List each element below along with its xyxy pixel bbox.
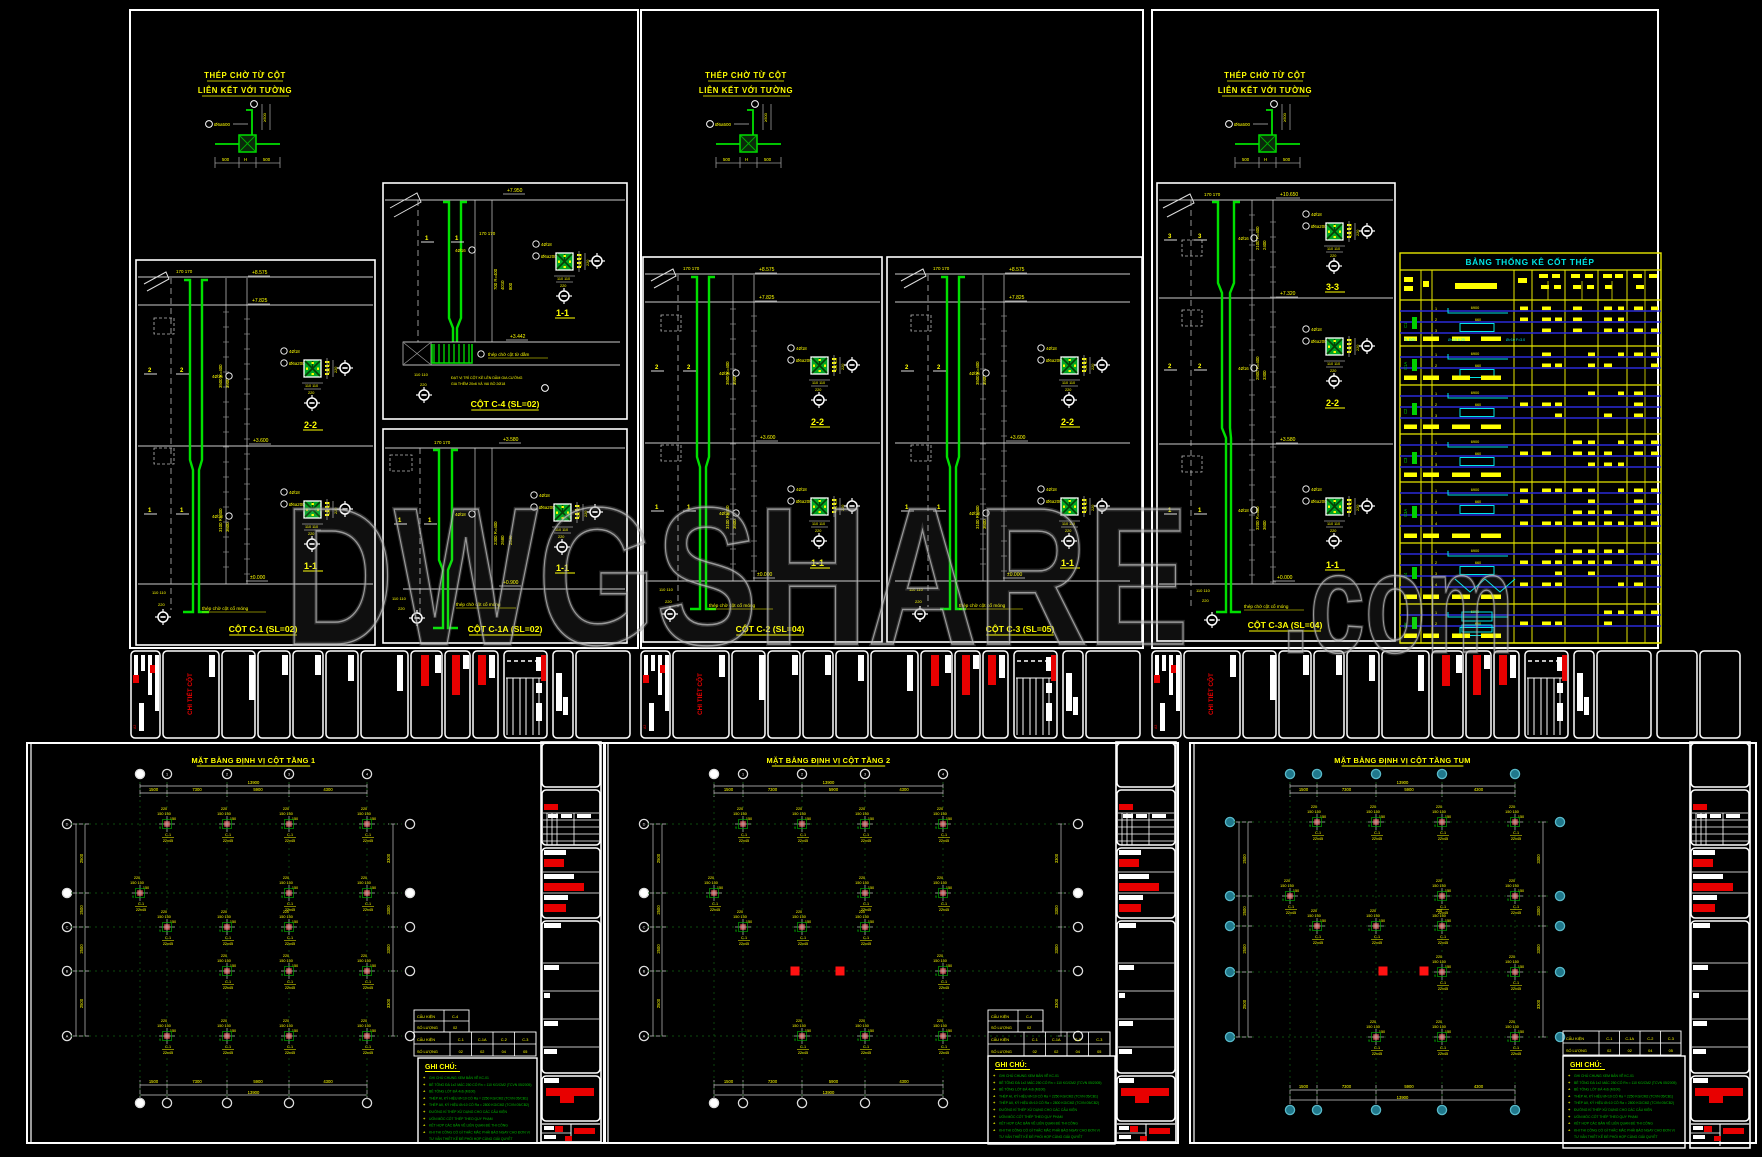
svg-text:22x45: 22x45 bbox=[285, 942, 295, 946]
svg-text:C-1: C-1 bbox=[741, 936, 747, 940]
svg-text:150: 150 bbox=[868, 817, 874, 821]
svg-text:660: 660 bbox=[1475, 403, 1481, 407]
svg-text:9: 9 bbox=[1368, 1039, 1370, 1043]
svg-text:150 150: 150 150 bbox=[1307, 914, 1321, 918]
svg-text:150 150: 150 150 bbox=[1505, 1025, 1519, 1029]
svg-text:THÉP AI, KÝ HIỆU Ø<10 CÓ Ra =: THÉP AI, KÝ HIỆU Ø<10 CÓ Ra = 2250 KG/CM… bbox=[999, 1093, 1098, 1098]
svg-text:9: 9 bbox=[1434, 928, 1436, 932]
svg-text:6900: 6900 bbox=[1471, 440, 1479, 444]
svg-text:150 150: 150 150 bbox=[792, 1024, 806, 1028]
svg-text:150: 150 bbox=[230, 920, 236, 924]
svg-text:22x45: 22x45 bbox=[1313, 941, 1323, 945]
svg-text:22x45: 22x45 bbox=[939, 839, 949, 843]
svg-text:22x45: 22x45 bbox=[710, 908, 720, 912]
svg-text:22x45: 22x45 bbox=[1313, 837, 1323, 841]
svg-text:2: 2 bbox=[1435, 318, 1437, 322]
svg-text:1500: 1500 bbox=[149, 787, 159, 792]
svg-text:TƯ VẤN THIẾT KẾ ĐỂ PHỐI HỢP CÙ: TƯ VẤN THIẾT KẾ ĐỂ PHỐI HỢP CÙNG GIẢI QU… bbox=[429, 1136, 513, 1141]
svg-text:9: 9 bbox=[857, 929, 859, 933]
svg-text:1-1: 1-1 bbox=[556, 308, 569, 318]
svg-text:22x45: 22x45 bbox=[223, 942, 233, 946]
svg-text:9: 9 bbox=[935, 973, 937, 977]
svg-text:9: 9 bbox=[281, 973, 283, 977]
svg-text:SỐ LƯỢNG: SỐ LƯỢNG bbox=[991, 1049, 1012, 1054]
svg-text:150 150: 150 150 bbox=[157, 915, 171, 919]
svg-text:220: 220 bbox=[1436, 909, 1442, 913]
svg-text:9: 9 bbox=[735, 929, 737, 933]
svg-text:150 150: 150 150 bbox=[855, 915, 869, 919]
svg-text:150 150: 150 150 bbox=[1432, 884, 1446, 888]
svg-text:9: 9 bbox=[857, 1038, 859, 1042]
svg-text:150: 150 bbox=[805, 1029, 811, 1033]
svg-text:220: 220 bbox=[1370, 1020, 1376, 1024]
svg-text:220: 220 bbox=[1436, 1020, 1442, 1024]
svg-text:150: 150 bbox=[868, 1029, 874, 1033]
svg-text:3300: 3300 bbox=[1054, 998, 1059, 1008]
svg-text:C-4: C-4 bbox=[452, 1015, 458, 1019]
svg-text:+3.442: +3.442 bbox=[510, 334, 526, 340]
svg-text:C-1: C-1 bbox=[1606, 1037, 1612, 1041]
svg-text:BẢNG THỐNG KÊ CỐT THÉP: BẢNG THỐNG KÊ CỐT THÉP bbox=[1465, 256, 1594, 267]
svg-text:THÉP AII, KÝ HIỆU Ø>10 CÓ Ra =: THÉP AII, KÝ HIỆU Ø>10 CÓ Ra = 2800 KG/C… bbox=[999, 1100, 1099, 1105]
svg-text:C-1: C-1 bbox=[1032, 1038, 1038, 1042]
svg-text:220: 220 bbox=[1311, 909, 1317, 913]
svg-text:C-1: C-1 bbox=[365, 1045, 371, 1049]
svg-text:5900: 5900 bbox=[1404, 787, 1414, 792]
svg-text:22x45: 22x45 bbox=[285, 1051, 295, 1055]
svg-text:CỘT C-4 (SL=02): CỘT C-4 (SL=02) bbox=[471, 398, 540, 409]
svg-text:150: 150 bbox=[170, 920, 176, 924]
svg-text:220: 220 bbox=[1284, 879, 1290, 883]
svg-text:4300: 4300 bbox=[323, 787, 333, 792]
svg-text:22x45: 22x45 bbox=[363, 986, 373, 990]
svg-text:9: 9 bbox=[794, 929, 796, 933]
svg-text:ĐƯỜNG KÍ THÉP XỬ DỤNG CHO CÁC: ĐƯỜNG KÍ THÉP XỬ DỤNG CHO CÁC CẤU KIỆN bbox=[999, 1107, 1077, 1112]
svg-text:150: 150 bbox=[370, 964, 376, 968]
svg-text:110 110: 110 110 bbox=[1196, 588, 1211, 593]
svg-text:1500: 1500 bbox=[149, 1079, 159, 1084]
svg-text:MẶT BẰNG ĐỊNH VỊ CỘT TẦNG 1: MẶT BẰNG ĐỊNH VỊ CỘT TẦNG 1 bbox=[192, 755, 316, 765]
svg-text:C-3: C-3 bbox=[522, 1038, 528, 1042]
svg-text:9: 9 bbox=[1309, 928, 1311, 932]
svg-text:150 150: 150 150 bbox=[357, 959, 371, 963]
svg-text:150: 150 bbox=[946, 817, 952, 821]
svg-text:1: 1 bbox=[1435, 392, 1437, 396]
svg-text:150 150: 150 150 bbox=[157, 1024, 171, 1028]
svg-text:150: 150 bbox=[946, 1029, 952, 1033]
svg-text:CẤU KIỆN: CẤU KIỆN bbox=[417, 1037, 435, 1042]
svg-text:220: 220 bbox=[937, 1019, 943, 1023]
svg-text:+3.580: +3.580 bbox=[503, 437, 519, 443]
svg-text:5900: 5900 bbox=[1404, 1084, 1414, 1089]
svg-text:5900: 5900 bbox=[829, 787, 839, 792]
svg-text:220: 220 bbox=[737, 807, 743, 811]
svg-text:1: 1 bbox=[1435, 307, 1437, 311]
svg-text:C-1: C-1 bbox=[1440, 981, 1446, 985]
svg-text:THÉP AI, KÝ HIỆU Ø<10 CÓ Ra =: THÉP AI, KÝ HIỆU Ø<10 CÓ Ra = 2250 KG/CM… bbox=[1574, 1093, 1673, 1098]
svg-text:150: 150 bbox=[1445, 815, 1451, 819]
svg-text:C-1: C-1 bbox=[863, 1045, 869, 1049]
svg-text:C-1: C-1 bbox=[1513, 981, 1519, 985]
svg-text:110 110: 110 110 bbox=[414, 372, 429, 377]
svg-text:6900: 6900 bbox=[1471, 391, 1479, 395]
svg-text:22x45: 22x45 bbox=[223, 839, 233, 843]
svg-text:150 150: 150 150 bbox=[357, 812, 371, 816]
svg-text:150 150: 150 150 bbox=[217, 1024, 231, 1028]
svg-text:220: 220 bbox=[161, 1019, 167, 1023]
svg-text:3300: 3300 bbox=[386, 853, 391, 863]
svg-text:150: 150 bbox=[143, 886, 149, 890]
svg-text:150 150: 150 150 bbox=[933, 812, 947, 816]
svg-text:22x45: 22x45 bbox=[1438, 1052, 1448, 1056]
svg-text:9: 9 bbox=[1434, 898, 1436, 902]
svg-text:660: 660 bbox=[1475, 364, 1481, 368]
svg-text:C-2: C-2 bbox=[1647, 1037, 1653, 1041]
svg-text:C-1: C-1 bbox=[1374, 1046, 1380, 1050]
svg-text:B: B bbox=[643, 970, 646, 974]
svg-text:150: 150 bbox=[746, 817, 752, 821]
svg-text:150 150: 150 150 bbox=[217, 959, 231, 963]
svg-text:150 150: 150 150 bbox=[357, 881, 371, 885]
svg-text:9: 9 bbox=[1507, 898, 1509, 902]
svg-text:CẤU KIỆN: CẤU KIỆN bbox=[1566, 1036, 1584, 1041]
svg-text:A: A bbox=[66, 1035, 69, 1039]
svg-text:C-1: C-1 bbox=[1513, 831, 1519, 835]
svg-text:150 150: 150 150 bbox=[1432, 960, 1446, 964]
svg-text:C-1: C-1 bbox=[1288, 905, 1294, 909]
svg-text:220: 220 bbox=[420, 382, 427, 387]
svg-text:C1: C1 bbox=[1403, 322, 1408, 328]
svg-text:22x45: 22x45 bbox=[739, 839, 749, 843]
svg-text:9: 9 bbox=[794, 1038, 796, 1042]
svg-text:C-3: C-3 bbox=[1096, 1038, 1102, 1042]
svg-text:3600: 3600 bbox=[1262, 520, 1267, 530]
svg-text:02: 02 bbox=[1607, 1049, 1611, 1053]
svg-text:C-1: C-1 bbox=[863, 833, 869, 837]
svg-text:220: 220 bbox=[361, 954, 367, 958]
svg-text:D: D bbox=[643, 823, 646, 827]
svg-text:2: 2 bbox=[1435, 452, 1437, 456]
svg-text:170 170: 170 170 bbox=[1204, 192, 1221, 197]
svg-text:02: 02 bbox=[1033, 1050, 1037, 1054]
svg-text:ĐƯỜNG KÍ THÉP XỬ DỤNG CHO CÁC: ĐƯỜNG KÍ THÉP XỬ DỤNG CHO CÁC CẤU KIỆN bbox=[1574, 1107, 1652, 1112]
svg-text:C-1: C-1 bbox=[225, 980, 231, 984]
svg-text:150: 150 bbox=[717, 886, 723, 890]
svg-text:C-1: C-1 bbox=[1440, 1046, 1446, 1050]
svg-text:22x45: 22x45 bbox=[1438, 837, 1448, 841]
svg-text:2: 2 bbox=[226, 773, 228, 777]
svg-text:KẾT HỢP CÁC BẢN VẼ LIÊN QUAN Đ: KẾT HỢP CÁC BẢN VẼ LIÊN QUAN ĐỂ THI CÔNG bbox=[999, 1121, 1078, 1126]
svg-text:9: 9 bbox=[1507, 1039, 1509, 1043]
svg-text:22x45: 22x45 bbox=[285, 839, 295, 843]
svg-text:KẾT HỢP CÁC BẢN VẼ LIÊN QUAN Đ: KẾT HỢP CÁC BẢN VẼ LIÊN QUAN ĐỂ THI CÔNG bbox=[1574, 1121, 1653, 1126]
svg-text:150: 150 bbox=[230, 964, 236, 968]
svg-text:5900: 5900 bbox=[253, 1079, 263, 1084]
svg-text:22x45: 22x45 bbox=[163, 1051, 173, 1055]
svg-text:C-1: C-1 bbox=[287, 902, 293, 906]
svg-text:SỐ LƯỢNG: SỐ LƯỢNG bbox=[417, 1049, 438, 1054]
svg-text:C3: C3 bbox=[1403, 457, 1408, 463]
svg-text:04: 04 bbox=[1076, 1050, 1080, 1054]
svg-text:9: 9 bbox=[219, 929, 221, 933]
svg-text:150 150: 150 150 bbox=[157, 812, 171, 816]
svg-text:4Ø16: 4Ø16 bbox=[1238, 366, 1249, 371]
svg-text:THÉP AI, KÝ HIỆU Ø<10 CÓ Ra =: THÉP AI, KÝ HIỆU Ø<10 CÓ Ra = 2250 KG/CM… bbox=[429, 1095, 528, 1100]
svg-text:9: 9 bbox=[219, 973, 221, 977]
svg-text:7300: 7300 bbox=[768, 787, 778, 792]
svg-text:22x45: 22x45 bbox=[798, 1051, 808, 1055]
svg-text:220: 220 bbox=[937, 954, 943, 958]
svg-text:2: 2 bbox=[801, 773, 803, 777]
svg-text:4Ø18: 4Ø18 bbox=[1238, 508, 1249, 513]
svg-text:4300: 4300 bbox=[1474, 787, 1484, 792]
svg-text:22x45: 22x45 bbox=[163, 839, 173, 843]
svg-text:A3: A3 bbox=[1154, 725, 1158, 729]
svg-text:C-2: C-2 bbox=[501, 1038, 507, 1042]
svg-text:02: 02 bbox=[1628, 1049, 1632, 1053]
svg-text:150: 150 bbox=[370, 817, 376, 821]
svg-text:C-1: C-1 bbox=[165, 1045, 171, 1049]
svg-text:22x45: 22x45 bbox=[798, 942, 808, 946]
svg-text:4300: 4300 bbox=[899, 1079, 909, 1084]
svg-text:C-1: C-1 bbox=[287, 1045, 293, 1049]
svg-text:GHI CHÚ:: GHI CHÚ: bbox=[425, 1062, 457, 1071]
svg-text:3300: 3300 bbox=[1054, 905, 1059, 915]
svg-text:1: 1 bbox=[1435, 353, 1437, 357]
svg-text:2500: 2500 bbox=[656, 944, 661, 954]
svg-text:220: 220 bbox=[221, 1019, 227, 1023]
svg-text:CẤU KIỆN: CẤU KIỆN bbox=[991, 1037, 1009, 1042]
svg-text:220: 220 bbox=[1370, 805, 1376, 809]
svg-text:BÊ TÔNG LÓT ĐÁ 4x6 (M100): BÊ TÔNG LÓT ĐÁ 4x6 (M100) bbox=[1574, 1087, 1620, 1092]
svg-text:9: 9 bbox=[219, 826, 221, 830]
svg-text:22x45: 22x45 bbox=[163, 942, 173, 946]
svg-text:GHI CHÚ CHUNG XEM BẢN VẼ KC-01: GHI CHÚ CHUNG XEM BẢN VẼ KC-01 bbox=[1574, 1073, 1634, 1078]
svg-text:150 150: 150 150 bbox=[1432, 1025, 1446, 1029]
svg-text:C-1A: C-1A bbox=[478, 1038, 487, 1042]
svg-text:9: 9 bbox=[359, 973, 361, 977]
svg-text:C-1: C-1 bbox=[365, 980, 371, 984]
svg-text:150 150: 150 150 bbox=[733, 812, 747, 816]
svg-text:ĐƯỜNG KÍ THÉP XỬ DỤNG CHO CÁC: ĐƯỜNG KÍ THÉP XỬ DỤNG CHO CÁC CẤU KIỆN bbox=[429, 1109, 507, 1114]
svg-text:22x45: 22x45 bbox=[798, 839, 808, 843]
svg-text:22x45: 22x45 bbox=[1372, 1052, 1382, 1056]
svg-text:9: 9 bbox=[1368, 928, 1370, 932]
svg-text:9: 9 bbox=[857, 826, 859, 830]
svg-text:220: 220 bbox=[859, 807, 865, 811]
svg-text:9: 9 bbox=[935, 1038, 937, 1042]
svg-text:150: 150 bbox=[746, 920, 752, 924]
svg-text:9: 9 bbox=[1434, 974, 1436, 978]
svg-text:150: 150 bbox=[946, 886, 952, 890]
svg-text:150 150: 150 150 bbox=[792, 812, 806, 816]
svg-text:220: 220 bbox=[361, 1019, 367, 1023]
svg-text:GHI CHÚ CHUNG XEM BẢN VẼ KC-01: GHI CHÚ CHUNG XEM BẢN VẼ KC-01 bbox=[429, 1075, 489, 1080]
svg-text:6900: 6900 bbox=[1471, 306, 1479, 310]
svg-text:4Ø16: 4Ø16 bbox=[1238, 236, 1249, 241]
svg-text:22x45: 22x45 bbox=[1511, 1052, 1521, 1056]
svg-text:Ø<10 6.25: Ø<10 6.25 bbox=[1448, 338, 1465, 342]
svg-text:22x45: 22x45 bbox=[939, 1051, 949, 1055]
svg-text:SỐ LƯỢNG: SỐ LƯỢNG bbox=[417, 1025, 438, 1030]
svg-text:150: 150 bbox=[292, 1029, 298, 1033]
svg-text:2: 2 bbox=[1435, 500, 1437, 504]
svg-text:150 150: 150 150 bbox=[217, 812, 231, 816]
svg-text:150 150: 150 150 bbox=[1307, 810, 1321, 814]
svg-text:22x45: 22x45 bbox=[1372, 941, 1382, 945]
svg-text:220: 220 bbox=[937, 807, 943, 811]
svg-text:.com: .com bbox=[1282, 524, 1514, 683]
svg-text:C-3: C-3 bbox=[1668, 1037, 1674, 1041]
svg-text:KHI THI CÔNG CÓ GÌ THẮC MẮC PH: KHI THI CÔNG CÓ GÌ THẮC MẮC PHẢI BÁO NGA… bbox=[429, 1129, 530, 1134]
svg-text:220: 220 bbox=[1370, 909, 1376, 913]
svg-text:150: 150 bbox=[230, 817, 236, 821]
svg-text:9: 9 bbox=[706, 895, 708, 899]
svg-text:C-1: C-1 bbox=[1315, 935, 1321, 939]
svg-text:3: 3 bbox=[288, 773, 290, 777]
svg-text:9: 9 bbox=[359, 826, 361, 830]
svg-text:4Ø16: 4Ø16 bbox=[455, 248, 466, 253]
svg-text:C-1: C-1 bbox=[941, 902, 947, 906]
svg-text:C: C bbox=[66, 926, 69, 930]
svg-text:C-1: C-1 bbox=[712, 902, 718, 906]
svg-text:C-1: C-1 bbox=[138, 902, 144, 906]
svg-text:2500: 2500 bbox=[79, 905, 84, 915]
svg-text:Ø>10 F=3.0: Ø>10 F=3.0 bbox=[1506, 338, 1525, 342]
svg-text:3: 3 bbox=[1435, 511, 1437, 515]
svg-text:22x45: 22x45 bbox=[285, 986, 295, 990]
svg-text:22x45: 22x45 bbox=[939, 986, 949, 990]
svg-text:C3A: C3A bbox=[1403, 509, 1408, 517]
svg-text:220: 220 bbox=[221, 807, 227, 811]
svg-text:MẶT BẰNG ĐỊNH VỊ CỘT TẦNG 2: MẶT BẰNG ĐỊNH VỊ CỘT TẦNG 2 bbox=[767, 755, 891, 765]
svg-text:3: 3 bbox=[864, 773, 866, 777]
svg-text:22x45: 22x45 bbox=[1438, 987, 1448, 991]
svg-text:02: 02 bbox=[459, 1050, 463, 1054]
svg-text:220: 220 bbox=[1509, 1020, 1515, 1024]
svg-text:2400: 2400 bbox=[1262, 240, 1267, 250]
svg-text:9: 9 bbox=[132, 895, 134, 899]
svg-text:KHI THI CÔNG CÓ GÌ THẮC MẮC PH: KHI THI CÔNG CÓ GÌ THẮC MẮC PHẢI BÁO NGA… bbox=[1574, 1127, 1675, 1132]
svg-text:150: 150 bbox=[868, 886, 874, 890]
svg-text:BÊ TÔNG ĐÁ 1x2 MÁC 250 CÓ Rn =: BÊ TÔNG ĐÁ 1x2 MÁC 250 CÓ Rn = 110 KG/CM… bbox=[999, 1080, 1101, 1085]
svg-text:C-1: C-1 bbox=[1374, 831, 1380, 835]
svg-text:220: 220 bbox=[1311, 805, 1317, 809]
svg-text:05: 05 bbox=[1097, 1050, 1101, 1054]
svg-text:+3.580: +3.580 bbox=[1280, 437, 1296, 443]
svg-text:150 150: 150 150 bbox=[733, 915, 747, 919]
svg-text:9: 9 bbox=[794, 826, 796, 830]
svg-text:150: 150 bbox=[230, 1029, 236, 1033]
svg-text:150: 150 bbox=[1518, 889, 1524, 893]
svg-text:3300: 3300 bbox=[1536, 854, 1541, 864]
svg-text:22x45: 22x45 bbox=[363, 839, 373, 843]
svg-text:150: 150 bbox=[1320, 919, 1326, 923]
svg-text:1500: 1500 bbox=[1299, 1084, 1309, 1089]
svg-text:05: 05 bbox=[1669, 1049, 1673, 1053]
svg-text:150: 150 bbox=[1445, 889, 1451, 893]
svg-text:3300: 3300 bbox=[1536, 999, 1541, 1009]
svg-text:THÉP AII, KÝ HIỆU Ø>10 CÓ Ra =: THÉP AII, KÝ HIỆU Ø>10 CÓ Ra = 2800 KG/C… bbox=[429, 1102, 529, 1107]
svg-text:+7.950: +7.950 bbox=[507, 188, 523, 194]
svg-text:220: 220 bbox=[1509, 955, 1515, 959]
svg-text:150: 150 bbox=[1379, 1030, 1385, 1034]
svg-text:660: 660 bbox=[1475, 318, 1481, 322]
svg-text:220: 220 bbox=[283, 876, 289, 880]
svg-text:C-1: C-1 bbox=[1440, 935, 1446, 939]
svg-text:150: 150 bbox=[292, 817, 298, 821]
svg-text:220: 220 bbox=[796, 910, 802, 914]
svg-text:220: 220 bbox=[859, 876, 865, 880]
svg-text:2500: 2500 bbox=[656, 853, 661, 863]
svg-text:05: 05 bbox=[523, 1050, 527, 1054]
svg-text:3: 3 bbox=[1435, 329, 1437, 333]
svg-text:1: 1 bbox=[166, 773, 168, 777]
svg-text:220: 220 bbox=[221, 910, 227, 914]
svg-text:220: 220 bbox=[796, 1019, 802, 1023]
svg-text:150: 150 bbox=[805, 920, 811, 924]
svg-text:220: 220 bbox=[1436, 879, 1442, 883]
svg-text:22x45: 22x45 bbox=[223, 1051, 233, 1055]
svg-text:C-2: C-2 bbox=[1075, 1038, 1081, 1042]
svg-text:2500: 2500 bbox=[1242, 906, 1247, 916]
svg-text:150 150: 150 150 bbox=[1280, 884, 1294, 888]
svg-text:13900: 13900 bbox=[823, 1090, 835, 1095]
svg-text:C-1: C-1 bbox=[1440, 831, 1446, 835]
svg-text:150: 150 bbox=[805, 817, 811, 821]
svg-text:13900: 13900 bbox=[248, 780, 260, 785]
svg-text:1: 1 bbox=[1435, 489, 1437, 493]
svg-text:2500: 2500 bbox=[656, 905, 661, 915]
svg-text:9: 9 bbox=[1507, 974, 1509, 978]
svg-text:C-1: C-1 bbox=[941, 1045, 947, 1049]
svg-text:TƯ VẤN THIẾT KẾ ĐỂ PHỐI HỢP CÙ: TƯ VẤN THIẾT KẾ ĐỂ PHỐI HỢP CÙNG GIẢI QU… bbox=[1574, 1134, 1658, 1139]
svg-text:9: 9 bbox=[281, 895, 283, 899]
svg-text:150: 150 bbox=[1379, 815, 1385, 819]
svg-text:9: 9 bbox=[857, 895, 859, 899]
svg-text:150 150: 150 150 bbox=[1366, 914, 1380, 918]
svg-text:150 150: 150 150 bbox=[792, 915, 806, 919]
svg-text:150 150: 150 150 bbox=[279, 812, 293, 816]
svg-text:9: 9 bbox=[281, 929, 283, 933]
svg-text:7300: 7300 bbox=[192, 1079, 202, 1084]
svg-text:150 150: 150 150 bbox=[279, 915, 293, 919]
svg-text:150 150: 150 150 bbox=[1505, 884, 1519, 888]
svg-text:150: 150 bbox=[370, 1029, 376, 1033]
svg-text:A3: A3 bbox=[133, 725, 137, 729]
svg-text:150 150: 150 150 bbox=[933, 1024, 947, 1028]
svg-text:220: 220 bbox=[161, 910, 167, 914]
svg-text:150 150: 150 150 bbox=[217, 915, 231, 919]
svg-text:150: 150 bbox=[1320, 815, 1326, 819]
svg-text:220: 220 bbox=[1436, 955, 1442, 959]
svg-text:150 150: 150 150 bbox=[1505, 960, 1519, 964]
svg-text:GHI CHÚ CHUNG XEM BẢN VẼ KC-01: GHI CHÚ CHUNG XEM BẢN VẼ KC-01 bbox=[999, 1073, 1059, 1078]
svg-text:220: 220 bbox=[859, 910, 865, 914]
svg-text:150 150: 150 150 bbox=[1432, 810, 1446, 814]
svg-text:ĐẠT Vị TRÍ CỘT KỀ LÊN DẦM GIA: ĐẠT Vị TRÍ CỘT KỀ LÊN DẦM GIA CƯỜNG bbox=[451, 375, 523, 380]
svg-text:170 170: 170 170 bbox=[479, 231, 496, 236]
svg-text:2500: 2500 bbox=[1242, 999, 1247, 1009]
svg-text:22x45: 22x45 bbox=[1438, 941, 1448, 945]
svg-text:C1A: C1A bbox=[1403, 362, 1408, 370]
svg-text:4300: 4300 bbox=[323, 1079, 333, 1084]
svg-text:+10.650: +10.650 bbox=[1280, 192, 1298, 198]
svg-text:22x45: 22x45 bbox=[363, 1051, 373, 1055]
svg-text:150: 150 bbox=[292, 920, 298, 924]
svg-text:170 170: 170 170 bbox=[434, 440, 451, 445]
svg-text:22x45: 22x45 bbox=[136, 908, 146, 912]
